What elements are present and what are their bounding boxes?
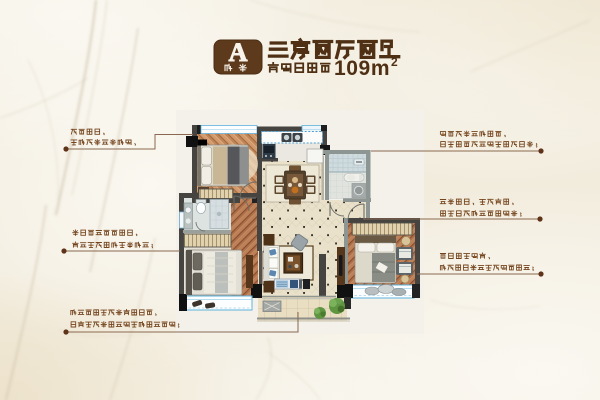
- svg-text:A: A: [229, 38, 248, 67]
- svg-text:2: 2: [391, 55, 398, 69]
- svg-text:109m: 109m: [334, 57, 390, 80]
